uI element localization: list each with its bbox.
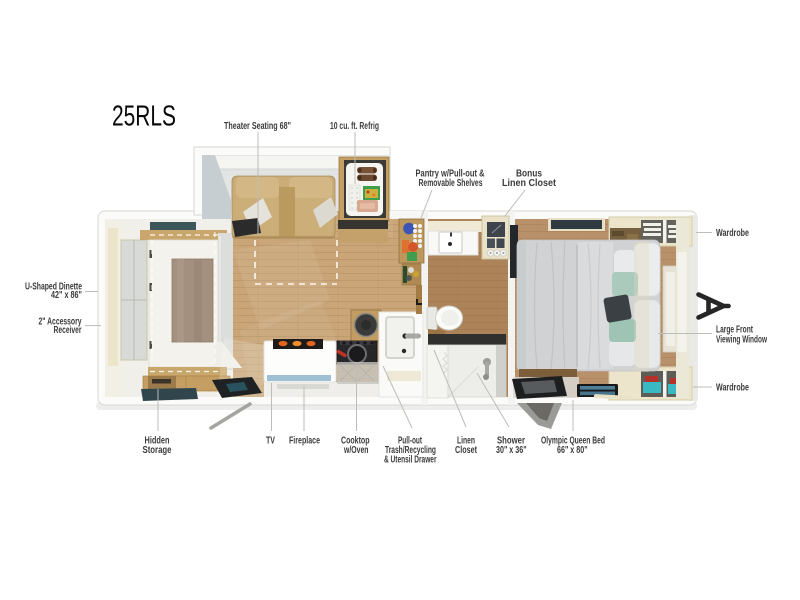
svg-text:Viewing Window: Viewing Window [716, 334, 767, 345]
svg-text:Storage: Storage [143, 445, 172, 456]
svg-text:42" x 86": 42" x 86" [51, 290, 82, 301]
svg-text:w/Oven: w/Oven [343, 445, 368, 456]
svg-text:Closet: Closet [455, 445, 477, 456]
svg-text:Removable Shelves: Removable Shelves [419, 178, 483, 189]
svg-text:Linen Closet: Linen Closet [502, 178, 557, 189]
svg-text:66" x 80": 66" x 80" [557, 445, 588, 456]
svg-text:Wardrobe: Wardrobe [716, 228, 749, 239]
svg-text:Receiver: Receiver [54, 325, 82, 336]
svg-text:Wardrobe: Wardrobe [716, 383, 749, 394]
svg-text:Theater Seating 68": Theater Seating 68" [224, 121, 291, 132]
svg-text:TV: TV [266, 436, 275, 447]
svg-text:Fireplace: Fireplace [289, 436, 320, 447]
svg-text:30" x 36": 30" x 36" [496, 445, 527, 456]
svg-text:10 cu. ft. Refrig: 10 cu. ft. Refrig [330, 121, 379, 132]
svg-text:& Utensil Drawer: & Utensil Drawer [384, 455, 437, 466]
svg-text:25RLS: 25RLS [112, 101, 176, 133]
